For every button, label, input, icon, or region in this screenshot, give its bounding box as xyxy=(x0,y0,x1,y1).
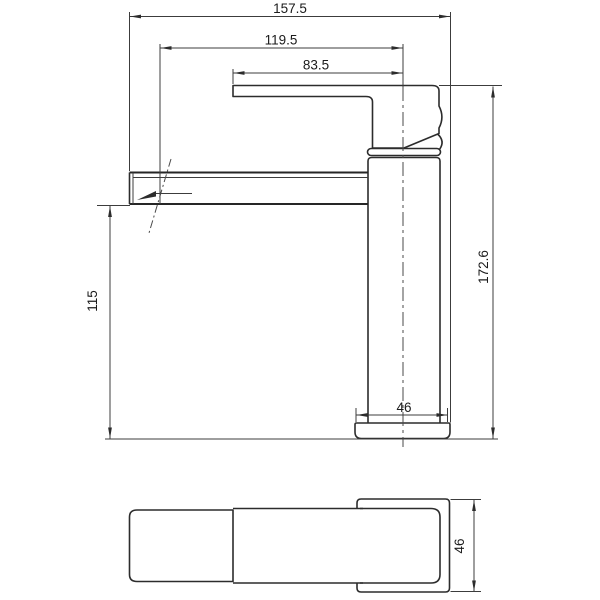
plan-view: 46 xyxy=(130,499,482,592)
dim-spout-height-label: 115 xyxy=(85,290,100,312)
dim-aerator-reach: 119.5 xyxy=(160,33,403,205)
dim-overall-length: 157.5 xyxy=(130,1,451,423)
dim-overall-height-label: 172.6 xyxy=(476,250,491,284)
dim-spout-height: 115 xyxy=(85,206,130,439)
dim-overall-height: 172.6 xyxy=(439,86,502,439)
lever-end-curve xyxy=(438,134,443,150)
dim-base-width-side-label: 46 xyxy=(396,400,411,415)
technical-drawing-canvas: 157.5 119.5 83.5 172.6 xyxy=(0,0,600,600)
body-column xyxy=(368,158,440,424)
cad-drawing: 157.5 119.5 83.5 172.6 xyxy=(0,0,600,600)
dim-base-width-side: 46 xyxy=(356,400,448,422)
dim-overall-length-label: 157.5 xyxy=(273,1,307,16)
dim-aerator-reach-label: 119.5 xyxy=(265,33,298,48)
dim-handle-reach: 83.5 xyxy=(233,58,403,85)
plan-spout-tip xyxy=(130,510,234,582)
aerator-arrow xyxy=(137,191,156,200)
cartridge-collar xyxy=(368,149,441,156)
dim-base-width-plan: 46 xyxy=(451,500,482,592)
dim-handle-reach-label: 83.5 xyxy=(303,58,329,73)
side-view: 157.5 119.5 83.5 172.6 xyxy=(85,1,502,447)
dim-base-width-plan-label: 46 xyxy=(452,538,467,553)
plan-base-plate xyxy=(357,499,450,592)
handle-lever-outline xyxy=(233,86,442,149)
plan-body xyxy=(360,509,440,584)
